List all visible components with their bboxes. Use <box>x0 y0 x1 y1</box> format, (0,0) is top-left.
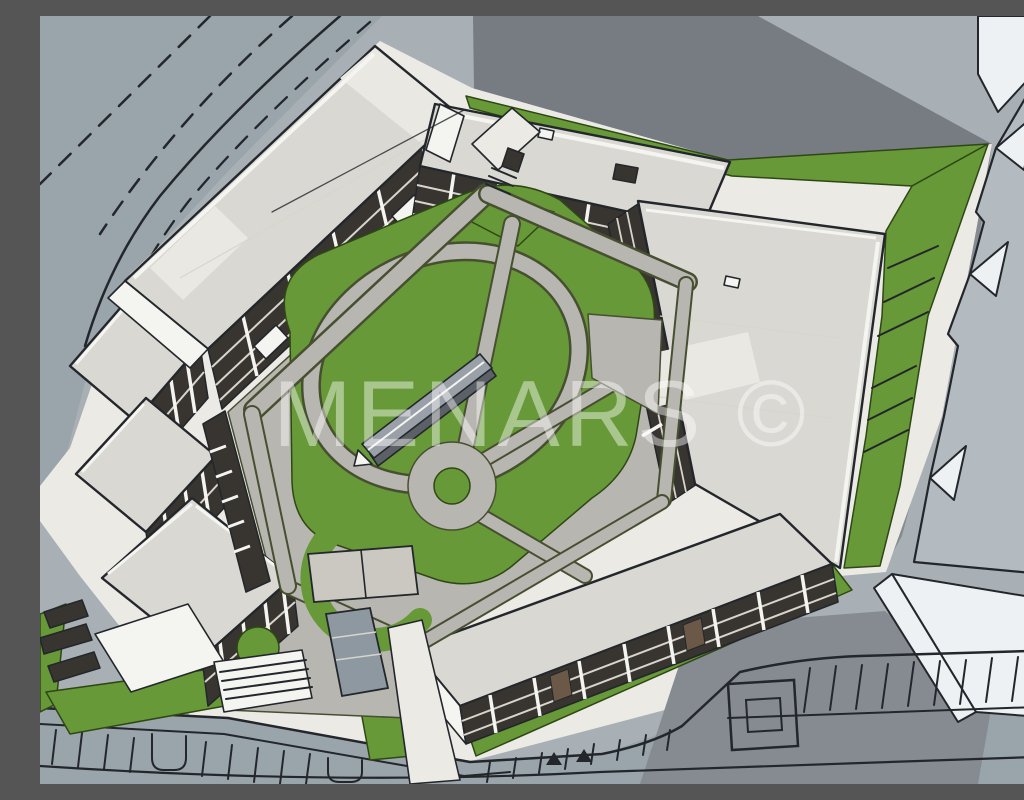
garden-structure <box>613 164 638 183</box>
roof-vent <box>538 128 554 140</box>
roundabout-lawn <box>434 468 470 504</box>
architectural-render: MENARS © <box>40 16 1024 784</box>
site-render-canvas: MENARS © <box>40 16 1024 784</box>
roof-vent <box>724 276 740 288</box>
watermark: MENARS © <box>273 361 811 466</box>
